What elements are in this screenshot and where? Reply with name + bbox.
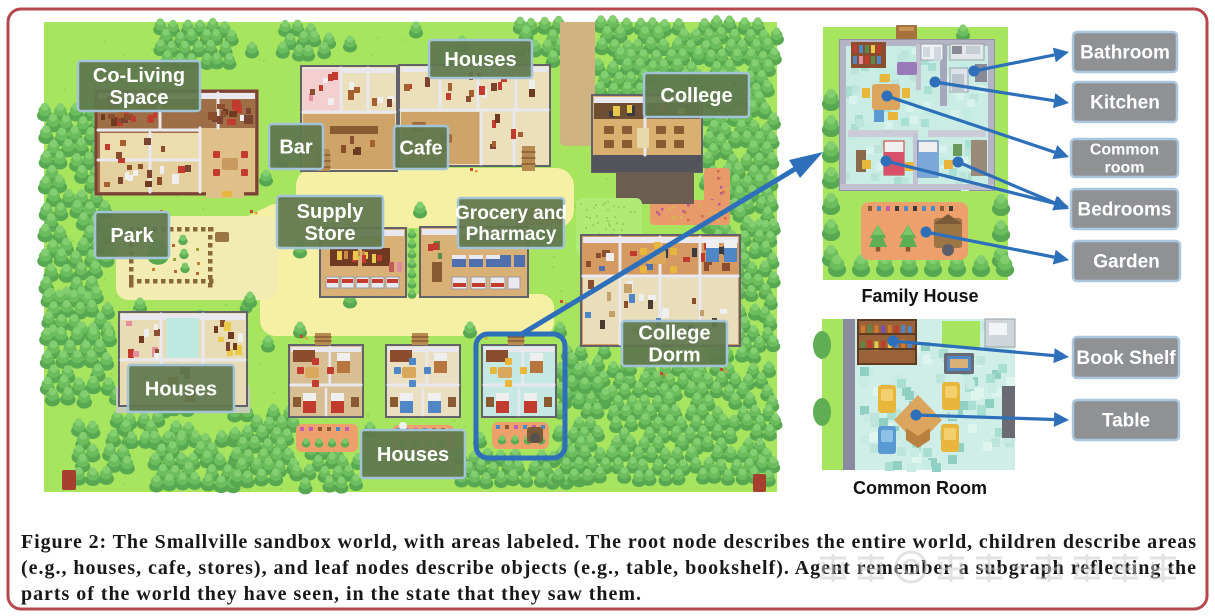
svg-text:Pharmacy: Pharmacy xyxy=(466,224,557,245)
svg-text:Family House: Family House xyxy=(861,286,978,306)
svg-text:College: College xyxy=(660,85,732,107)
svg-text:Park: Park xyxy=(110,225,154,247)
svg-text:Book Shelf: Book Shelf xyxy=(1076,348,1176,369)
svg-text:Common: Common xyxy=(1090,142,1159,159)
svg-text:Grocery and: Grocery and xyxy=(455,203,567,224)
svg-text:Kitchen: Kitchen xyxy=(1090,93,1160,114)
svg-text:Bar: Bar xyxy=(279,137,313,159)
svg-text:Table: Table xyxy=(1102,411,1150,432)
svg-text:Co-Living: Co-Living xyxy=(93,65,185,87)
svg-text:parts of the world they have s: parts of the world they have seen, in th… xyxy=(21,583,641,605)
svg-text:Figure 2: The Smallville sandb: Figure 2: The Smallville sandbox world, … xyxy=(21,531,1196,553)
svg-text:Dorm: Dorm xyxy=(648,345,700,367)
svg-text:College: College xyxy=(638,323,710,345)
svg-text:Supply: Supply xyxy=(297,201,365,223)
svg-text:Cafe: Cafe xyxy=(399,138,442,160)
svg-text:Store: Store xyxy=(304,223,355,245)
svg-text:Garden: Garden xyxy=(1093,252,1160,273)
svg-text:room: room xyxy=(1105,160,1145,177)
svg-text:Common Room: Common Room xyxy=(853,478,987,498)
svg-text:Houses: Houses xyxy=(444,49,516,71)
svg-text:Bathroom: Bathroom xyxy=(1080,43,1170,64)
svg-text:Houses: Houses xyxy=(145,379,217,401)
svg-text:Houses: Houses xyxy=(377,444,449,466)
svg-text:Space: Space xyxy=(110,87,169,109)
svg-text:Bedrooms: Bedrooms xyxy=(1078,200,1172,221)
